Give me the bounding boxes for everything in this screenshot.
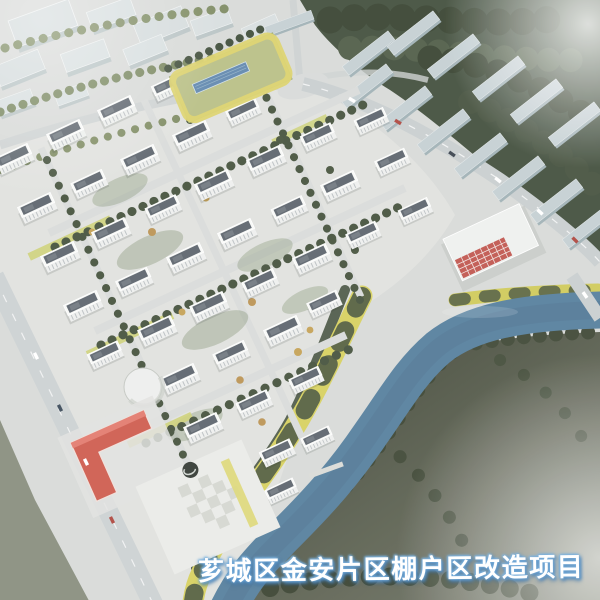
- photo-film: [0, 0, 600, 600]
- project-title-caption: 芗城区金安片区棚户区改造项目: [198, 547, 585, 589]
- aerial-rendering-photo: 芗城区金安片区棚户区改造项目: [0, 0, 600, 600]
- site-rendering-canvas: [0, 0, 600, 600]
